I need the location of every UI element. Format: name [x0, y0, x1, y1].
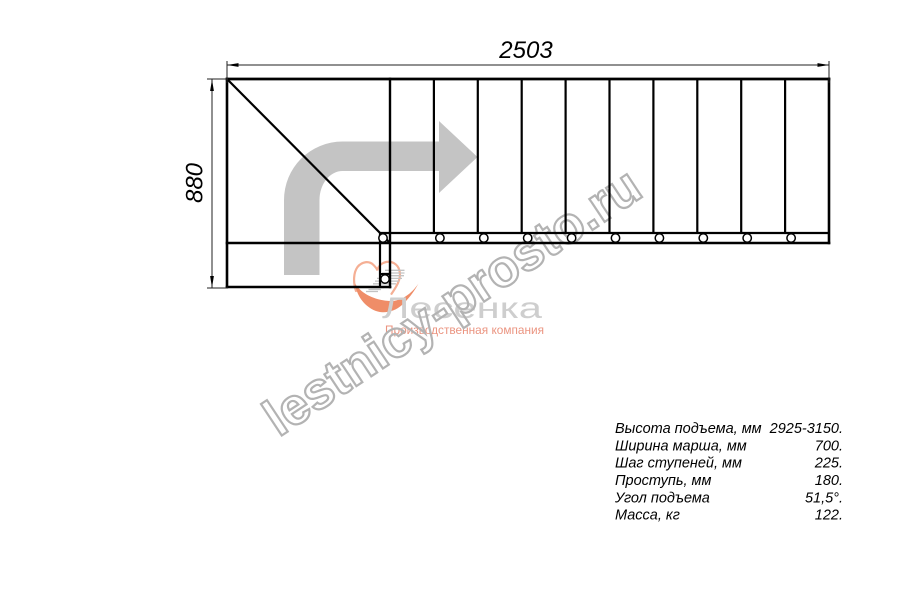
- svg-text:700.: 700.: [815, 438, 843, 454]
- svg-text:Шаг ступеней, мм: Шаг ступеней, мм: [615, 456, 742, 472]
- svg-text:Высота подъема, мм: Высота подъема, мм: [615, 421, 762, 437]
- svg-text:880: 880: [182, 162, 209, 203]
- svg-text:51,5°.: 51,5°.: [805, 490, 843, 506]
- svg-text:Ширина марша, мм: Ширина марша, мм: [615, 438, 747, 454]
- svg-text:Проступь, мм: Проступь, мм: [615, 473, 711, 489]
- svg-text:122.: 122.: [815, 508, 843, 524]
- svg-text:2925-3150.: 2925-3150.: [769, 421, 843, 437]
- svg-text:225.: 225.: [814, 456, 843, 472]
- svg-text:2503: 2503: [498, 37, 553, 64]
- svg-text:180.: 180.: [815, 473, 843, 489]
- svg-text:Масса, кг: Масса, кг: [615, 508, 680, 524]
- svg-text:Угол подъема: Угол подъема: [614, 490, 710, 506]
